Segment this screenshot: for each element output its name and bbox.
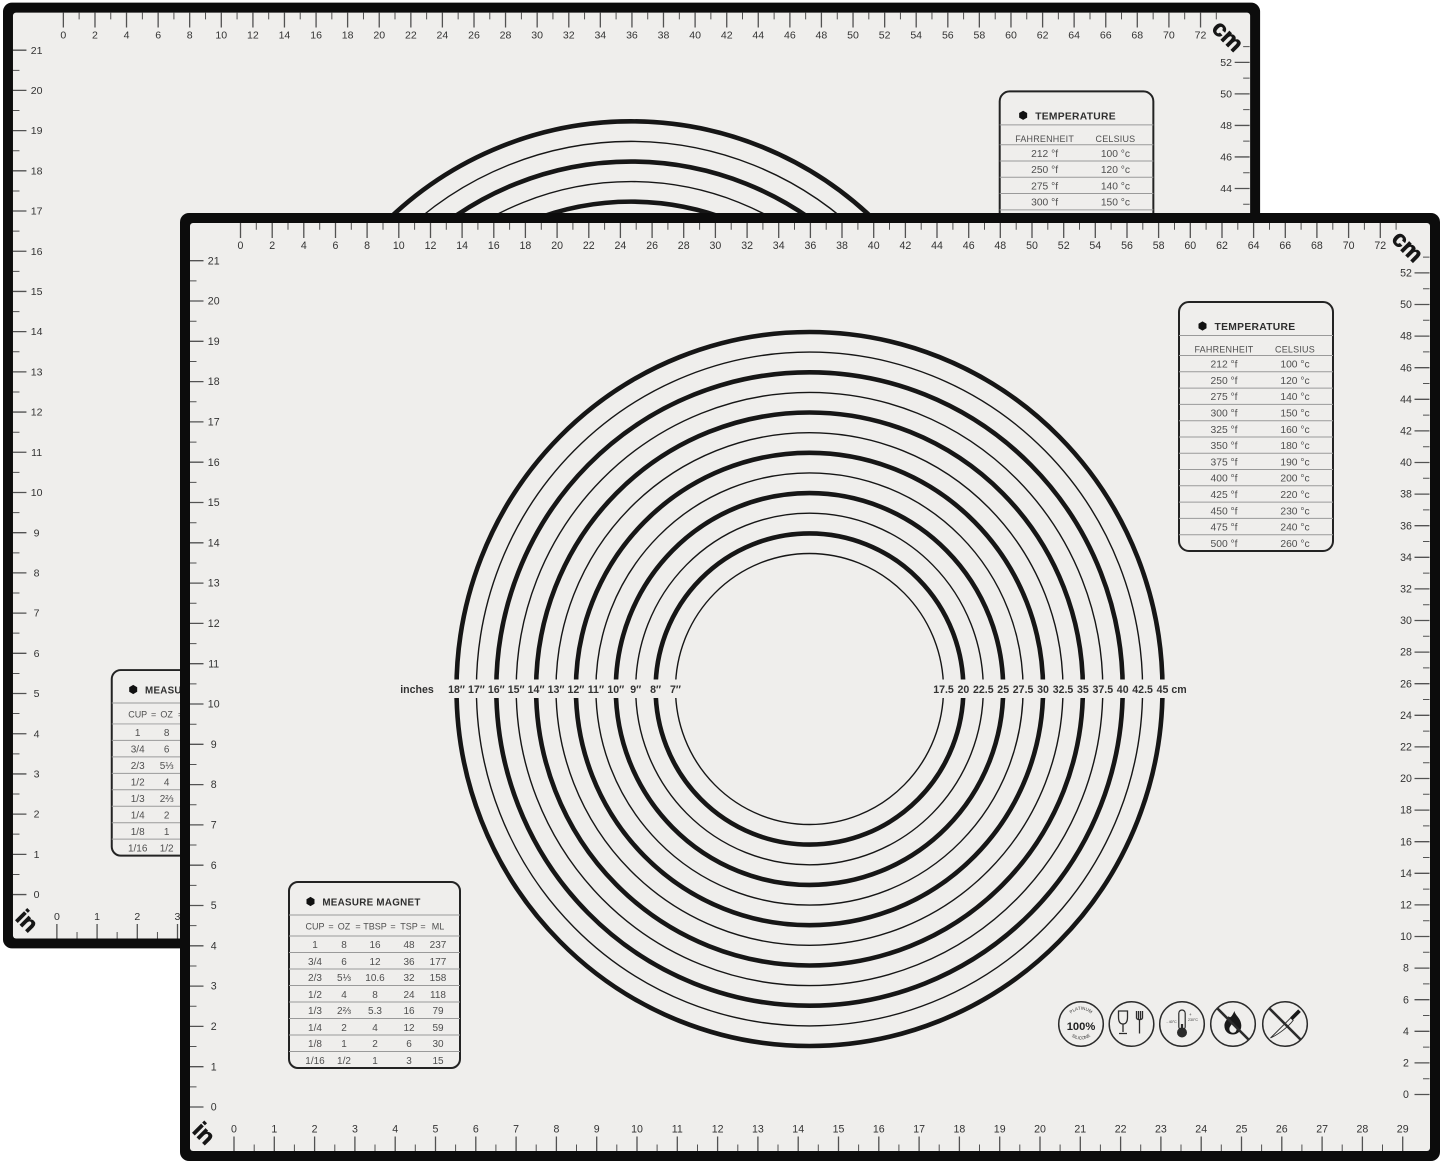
svg-text:50: 50 — [847, 30, 859, 42]
svg-text:450 °f: 450 °f — [1210, 506, 1237, 517]
svg-text:38: 38 — [658, 30, 670, 42]
svg-text:9″: 9″ — [630, 684, 641, 696]
svg-text:66: 66 — [1279, 240, 1291, 252]
svg-text:177: 177 — [430, 957, 447, 968]
svg-text:59: 59 — [432, 1023, 444, 1034]
svg-text:16: 16 — [369, 940, 381, 951]
svg-text:18: 18 — [954, 1124, 966, 1136]
svg-text:23: 23 — [1155, 1124, 1167, 1136]
svg-text:28: 28 — [500, 30, 512, 42]
svg-text:5.3: 5.3 — [368, 1006, 382, 1017]
svg-text:12: 12 — [31, 407, 43, 419]
svg-text:62: 62 — [1216, 240, 1228, 252]
svg-text:TEMPERATURE: TEMPERATURE — [1215, 322, 1296, 333]
svg-text:3: 3 — [352, 1124, 358, 1136]
svg-text:6: 6 — [155, 30, 161, 42]
svg-text:4: 4 — [211, 940, 217, 952]
svg-text:4: 4 — [1403, 1026, 1409, 1038]
svg-text:68: 68 — [1311, 240, 1323, 252]
svg-text:2: 2 — [312, 1124, 318, 1136]
svg-text:16: 16 — [488, 240, 500, 252]
svg-text:20: 20 — [1034, 1124, 1046, 1136]
svg-text:36: 36 — [1400, 520, 1412, 532]
svg-text:5⅓: 5⅓ — [160, 761, 175, 772]
svg-text:6: 6 — [333, 240, 339, 252]
svg-text:50: 50 — [1026, 240, 1038, 252]
svg-text:22: 22 — [1115, 1124, 1127, 1136]
svg-text:30: 30 — [1037, 684, 1049, 696]
svg-text:MEASURE MAGNET: MEASURE MAGNET — [322, 898, 420, 909]
svg-text:2: 2 — [269, 240, 275, 252]
svg-text:44: 44 — [1400, 394, 1412, 406]
svg-text:CUP: CUP — [305, 922, 324, 932]
svg-text:475 °f: 475 °f — [1210, 523, 1237, 534]
svg-text:8: 8 — [364, 240, 370, 252]
svg-text:7: 7 — [211, 820, 217, 832]
svg-text:120 °c: 120 °c — [1101, 165, 1130, 176]
svg-text:10.6: 10.6 — [365, 973, 385, 984]
svg-text:21: 21 — [31, 45, 43, 57]
svg-text:FAHRENHEIT: FAHRENHEIT — [1194, 345, 1253, 355]
svg-text:12: 12 — [247, 30, 259, 42]
svg-text:66: 66 — [1100, 30, 1112, 42]
svg-text:5: 5 — [211, 900, 217, 912]
svg-text:32.5: 32.5 — [1053, 684, 1074, 696]
svg-text:64: 64 — [1248, 240, 1260, 252]
svg-text:1: 1 — [135, 728, 141, 739]
svg-text:8: 8 — [187, 30, 193, 42]
svg-text:1: 1 — [312, 940, 318, 951]
svg-text:150 °c: 150 °c — [1280, 409, 1309, 420]
svg-text:375 °f: 375 °f — [1210, 457, 1237, 468]
svg-text:20: 20 — [958, 684, 970, 696]
svg-text:100 °c: 100 °c — [1280, 360, 1309, 371]
svg-text:10: 10 — [393, 240, 405, 252]
svg-text:14: 14 — [456, 240, 468, 252]
svg-text:26: 26 — [468, 30, 480, 42]
svg-text:1/4: 1/4 — [131, 811, 145, 822]
svg-text:4: 4 — [341, 990, 347, 1001]
svg-text:1: 1 — [271, 1124, 277, 1136]
svg-text:17: 17 — [208, 417, 220, 429]
svg-text:3/4: 3/4 — [308, 957, 322, 968]
svg-text:1/16: 1/16 — [305, 1056, 325, 1067]
svg-text:60: 60 — [1184, 240, 1196, 252]
svg-text:200 °c: 200 °c — [1280, 474, 1309, 485]
svg-text:18: 18 — [31, 165, 43, 177]
svg-text:17.5: 17.5 — [933, 684, 954, 696]
svg-text:46: 46 — [1400, 362, 1412, 374]
svg-text:46: 46 — [1220, 152, 1232, 164]
svg-text:46: 46 — [784, 30, 796, 42]
svg-text:6: 6 — [406, 1039, 412, 1050]
svg-text:19: 19 — [994, 1124, 1006, 1136]
svg-text:44: 44 — [752, 30, 764, 42]
svg-text:8: 8 — [1403, 963, 1409, 975]
svg-text:14: 14 — [208, 537, 220, 549]
svg-text:14: 14 — [279, 30, 291, 42]
svg-text:11: 11 — [31, 447, 42, 459]
svg-text:1: 1 — [372, 1056, 378, 1067]
svg-text:48: 48 — [1220, 120, 1232, 132]
svg-text:10″: 10″ — [607, 684, 624, 696]
svg-text:16: 16 — [1400, 836, 1412, 848]
svg-text:14: 14 — [31, 326, 43, 338]
svg-text:7″: 7″ — [670, 684, 681, 696]
svg-text:OZ: OZ — [338, 922, 351, 932]
svg-text:2: 2 — [211, 1021, 217, 1033]
svg-text:32: 32 — [563, 30, 575, 42]
svg-text:21: 21 — [1074, 1124, 1086, 1136]
svg-text:212 °f: 212 °f — [1031, 149, 1058, 160]
svg-text:190 °c: 190 °c — [1280, 457, 1309, 468]
svg-text:1: 1 — [211, 1061, 217, 1073]
svg-text:FAHRENHEIT: FAHRENHEIT — [1015, 134, 1074, 144]
svg-text:30: 30 — [531, 30, 543, 42]
svg-text:CUP: CUP — [128, 709, 147, 719]
svg-text:2: 2 — [34, 809, 40, 821]
svg-text:26: 26 — [1400, 678, 1412, 690]
svg-text:8: 8 — [372, 990, 378, 1001]
svg-text:3: 3 — [211, 981, 217, 993]
svg-text:8″: 8″ — [650, 684, 661, 696]
svg-text:ML: ML — [432, 922, 445, 932]
svg-text:0: 0 — [238, 240, 244, 252]
svg-text:1/2: 1/2 — [160, 843, 174, 854]
svg-text:1: 1 — [164, 827, 170, 838]
svg-text:13″: 13″ — [548, 684, 565, 696]
svg-text:48: 48 — [816, 30, 828, 42]
svg-text:17″: 17″ — [468, 684, 485, 696]
svg-text:10: 10 — [31, 487, 43, 499]
svg-text:0: 0 — [34, 889, 40, 901]
svg-text:60: 60 — [1005, 30, 1017, 42]
svg-text:35: 35 — [1077, 684, 1089, 696]
svg-text:250 °f: 250 °f — [1210, 376, 1237, 387]
svg-text:212 °f: 212 °f — [1210, 360, 1237, 371]
svg-text:158: 158 — [430, 973, 447, 984]
svg-text:30: 30 — [1400, 615, 1412, 627]
svg-text:40: 40 — [1117, 684, 1129, 696]
svg-text:2/3: 2/3 — [308, 973, 322, 984]
svg-text:=: = — [328, 922, 333, 932]
svg-text:1: 1 — [341, 1039, 347, 1050]
svg-text:15: 15 — [208, 497, 220, 509]
svg-text:20: 20 — [551, 240, 563, 252]
svg-text:24: 24 — [615, 240, 627, 252]
svg-text:140 °c: 140 °c — [1101, 181, 1130, 192]
svg-text:180 °c: 180 °c — [1280, 441, 1309, 452]
svg-text:12: 12 — [1400, 900, 1412, 912]
svg-text:118: 118 — [430, 990, 446, 1001]
svg-text:48: 48 — [994, 240, 1006, 252]
svg-text:12: 12 — [712, 1124, 724, 1136]
svg-text:11: 11 — [672, 1124, 683, 1136]
svg-text:32: 32 — [403, 973, 415, 984]
svg-text:14″: 14″ — [528, 684, 545, 696]
svg-text:12: 12 — [369, 957, 381, 968]
svg-text:10: 10 — [1400, 931, 1412, 943]
svg-text:12: 12 — [425, 240, 437, 252]
svg-text:TSP: TSP — [400, 922, 418, 932]
svg-text:400 °f: 400 °f — [1210, 474, 1237, 485]
svg-text:9: 9 — [594, 1124, 600, 1136]
svg-text:50: 50 — [1220, 88, 1232, 100]
svg-text:=: = — [420, 922, 425, 932]
svg-text:1/3: 1/3 — [131, 794, 145, 805]
svg-text:58: 58 — [1153, 240, 1165, 252]
svg-text:16: 16 — [873, 1124, 885, 1136]
svg-text:inches: inches — [400, 684, 434, 696]
svg-text:50: 50 — [1400, 299, 1412, 311]
svg-text:36: 36 — [403, 957, 415, 968]
svg-text:22: 22 — [583, 240, 595, 252]
svg-text:56: 56 — [942, 30, 954, 42]
svg-text:34: 34 — [594, 30, 606, 42]
svg-text:4: 4 — [34, 728, 40, 740]
svg-text:34: 34 — [773, 240, 785, 252]
svg-text:45: 45 — [1157, 684, 1169, 696]
svg-text:70: 70 — [1343, 240, 1355, 252]
svg-text:22: 22 — [405, 30, 417, 42]
svg-text:29: 29 — [1397, 1124, 1409, 1136]
svg-text:21: 21 — [208, 255, 220, 267]
svg-text:1/2: 1/2 — [308, 990, 322, 1001]
svg-text:48: 48 — [1400, 331, 1412, 343]
svg-text:2: 2 — [372, 1039, 378, 1050]
svg-text:230°C: 230°C — [1188, 1018, 1198, 1022]
svg-text:1/2: 1/2 — [131, 778, 145, 789]
svg-text:32: 32 — [1400, 584, 1412, 596]
svg-text:1: 1 — [34, 849, 40, 861]
svg-text:62: 62 — [1037, 30, 1049, 42]
svg-text:1/16: 1/16 — [128, 843, 148, 854]
svg-text:52: 52 — [879, 30, 891, 42]
svg-text:2: 2 — [164, 811, 170, 822]
svg-text:8: 8 — [211, 779, 217, 791]
svg-text:150 °c: 150 °c — [1101, 198, 1130, 209]
svg-text:4: 4 — [124, 30, 130, 42]
svg-text:26: 26 — [1276, 1124, 1288, 1136]
svg-text:300 °f: 300 °f — [1210, 409, 1237, 420]
svg-text:20: 20 — [1400, 773, 1412, 785]
svg-text:275 °f: 275 °f — [1031, 181, 1058, 192]
svg-text:300 °f: 300 °f — [1031, 198, 1058, 209]
svg-text:36: 36 — [805, 240, 817, 252]
svg-text:5: 5 — [34, 688, 40, 700]
svg-text:79: 79 — [432, 1006, 444, 1017]
svg-text:52: 52 — [1220, 57, 1232, 69]
svg-text:=: = — [151, 709, 156, 719]
svg-text:15: 15 — [833, 1124, 845, 1136]
svg-text:3: 3 — [175, 911, 181, 923]
svg-text:44: 44 — [931, 240, 943, 252]
svg-text:0: 0 — [231, 1124, 237, 1136]
svg-text:15″: 15″ — [508, 684, 525, 696]
svg-text:6: 6 — [34, 648, 40, 660]
svg-text:36: 36 — [626, 30, 638, 42]
svg-text:64: 64 — [1068, 30, 1080, 42]
svg-text:1: 1 — [94, 911, 100, 923]
svg-text:72: 72 — [1374, 240, 1386, 252]
svg-text:30: 30 — [710, 240, 722, 252]
svg-text:8: 8 — [34, 567, 40, 579]
svg-text:38: 38 — [836, 240, 848, 252]
svg-text:20: 20 — [208, 296, 220, 308]
svg-text:CELSIUS: CELSIUS — [1096, 134, 1136, 144]
svg-text:24: 24 — [1400, 710, 1412, 722]
svg-text:=: = — [390, 922, 395, 932]
svg-text:1/8: 1/8 — [308, 1039, 322, 1050]
svg-text:72: 72 — [1195, 30, 1207, 42]
svg-text:500 °f: 500 °f — [1210, 539, 1237, 550]
svg-text:2/3: 2/3 — [131, 761, 145, 772]
svg-text:18″: 18″ — [448, 684, 465, 696]
svg-text:10: 10 — [631, 1124, 643, 1136]
svg-text:3/4: 3/4 — [131, 745, 145, 756]
svg-text:4: 4 — [392, 1124, 398, 1136]
svg-text:54: 54 — [1089, 240, 1101, 252]
svg-text:230 °c: 230 °c — [1280, 506, 1309, 517]
svg-text:6: 6 — [341, 957, 347, 968]
svg-text:4: 4 — [301, 240, 307, 252]
svg-text:240 °c: 240 °c — [1280, 523, 1309, 534]
svg-text:2: 2 — [134, 911, 140, 923]
svg-text:- 40°C: - 40°C — [1167, 1020, 1178, 1024]
svg-text:TBSP: TBSP — [363, 922, 387, 932]
svg-text:70: 70 — [1163, 30, 1175, 42]
svg-text:42: 42 — [721, 30, 733, 42]
svg-text:1/8: 1/8 — [131, 827, 145, 838]
svg-text:42: 42 — [900, 240, 912, 252]
svg-text:325 °f: 325 °f — [1210, 425, 1237, 436]
svg-text:18: 18 — [208, 376, 220, 388]
svg-text:12″: 12″ — [567, 684, 584, 696]
svg-text:28: 28 — [1357, 1124, 1369, 1136]
svg-text:46: 46 — [963, 240, 975, 252]
svg-text:12: 12 — [208, 618, 220, 630]
svg-text:22: 22 — [1400, 742, 1412, 754]
svg-text:2⅔: 2⅔ — [337, 1006, 352, 1017]
svg-text:2: 2 — [1403, 1058, 1409, 1070]
svg-text:28: 28 — [678, 240, 690, 252]
svg-text:26: 26 — [646, 240, 658, 252]
svg-text:11″: 11″ — [588, 684, 604, 696]
svg-text:0: 0 — [60, 30, 66, 42]
svg-text:16″: 16″ — [488, 684, 505, 696]
svg-text:25: 25 — [1236, 1124, 1248, 1136]
svg-text:2: 2 — [92, 30, 98, 42]
svg-text:42: 42 — [1400, 426, 1412, 438]
svg-text:350 °f: 350 °f — [1210, 441, 1237, 452]
svg-text:160 °c: 160 °c — [1280, 425, 1309, 436]
svg-text:16: 16 — [208, 457, 220, 469]
svg-text:16: 16 — [310, 30, 322, 42]
svg-text:0: 0 — [211, 1102, 217, 1114]
svg-text:18: 18 — [520, 240, 532, 252]
svg-text:56: 56 — [1121, 240, 1133, 252]
svg-text:425 °f: 425 °f — [1210, 490, 1237, 501]
svg-text:44: 44 — [1220, 183, 1232, 195]
svg-text:5⅓: 5⅓ — [337, 973, 352, 984]
svg-text:20: 20 — [373, 30, 385, 42]
svg-text:38: 38 — [1400, 489, 1412, 501]
svg-text:1/2: 1/2 — [337, 1056, 351, 1067]
svg-text:24: 24 — [403, 990, 415, 1001]
svg-text:=: = — [355, 922, 360, 932]
svg-text:30: 30 — [432, 1039, 444, 1050]
svg-text:48: 48 — [403, 940, 415, 951]
svg-text:58: 58 — [973, 30, 985, 42]
svg-text:24: 24 — [437, 30, 449, 42]
svg-text:OZ: OZ — [160, 709, 173, 719]
svg-text:140 °c: 140 °c — [1280, 392, 1309, 403]
svg-text:13: 13 — [31, 366, 43, 378]
svg-text:6: 6 — [211, 860, 217, 872]
svg-text:68: 68 — [1131, 30, 1143, 42]
svg-text:8: 8 — [164, 728, 170, 739]
svg-text:237: 237 — [430, 940, 447, 951]
svg-text:22.5: 22.5 — [973, 684, 994, 696]
svg-text:18: 18 — [1400, 805, 1412, 817]
svg-text:3: 3 — [34, 769, 40, 781]
svg-text:27: 27 — [1316, 1124, 1328, 1136]
svg-text:34: 34 — [1400, 552, 1412, 564]
svg-text:6: 6 — [164, 745, 170, 756]
svg-text:19: 19 — [31, 125, 43, 137]
svg-text:16: 16 — [31, 246, 43, 258]
svg-text:4: 4 — [164, 778, 170, 789]
svg-text:TEMPERATURE: TEMPERATURE — [1035, 111, 1116, 122]
svg-text:52: 52 — [1400, 268, 1412, 280]
svg-text:2: 2 — [341, 1023, 347, 1034]
svg-text:52: 52 — [1058, 240, 1070, 252]
svg-text:14: 14 — [792, 1124, 804, 1136]
svg-text:15: 15 — [31, 286, 43, 298]
svg-text:0: 0 — [1403, 1089, 1409, 1101]
svg-text:25: 25 — [997, 684, 1009, 696]
svg-text:13: 13 — [208, 578, 220, 590]
svg-text:100 °c: 100 °c — [1101, 149, 1130, 160]
svg-text:11: 11 — [208, 658, 219, 670]
svg-text:2⅔: 2⅔ — [160, 794, 175, 805]
svg-text:260 °c: 260 °c — [1280, 539, 1309, 550]
svg-text:4: 4 — [372, 1023, 378, 1034]
svg-text:40: 40 — [689, 30, 701, 42]
svg-text:+: + — [1189, 1012, 1192, 1017]
svg-text:100%: 100% — [1067, 1021, 1096, 1033]
svg-text:28: 28 — [1400, 647, 1412, 659]
svg-text:40: 40 — [868, 240, 880, 252]
svg-text:10: 10 — [208, 699, 220, 711]
svg-text:12: 12 — [403, 1023, 415, 1034]
svg-text:1/3: 1/3 — [308, 1006, 322, 1017]
svg-text:120 °c: 120 °c — [1280, 376, 1309, 387]
svg-text:7: 7 — [34, 608, 40, 620]
svg-text:54: 54 — [910, 30, 922, 42]
svg-text:14: 14 — [1400, 868, 1412, 880]
svg-text:20: 20 — [31, 85, 43, 97]
svg-text:8: 8 — [553, 1124, 559, 1136]
svg-text:0: 0 — [54, 911, 60, 923]
svg-text:250 °f: 250 °f — [1031, 165, 1058, 176]
svg-text:42.5: 42.5 — [1132, 684, 1153, 696]
svg-text:27.5: 27.5 — [1013, 684, 1034, 696]
svg-text:17: 17 — [913, 1124, 925, 1136]
svg-text:1/4: 1/4 — [308, 1023, 322, 1034]
svg-text:7: 7 — [513, 1124, 519, 1136]
svg-text:cm: cm — [1171, 684, 1186, 696]
